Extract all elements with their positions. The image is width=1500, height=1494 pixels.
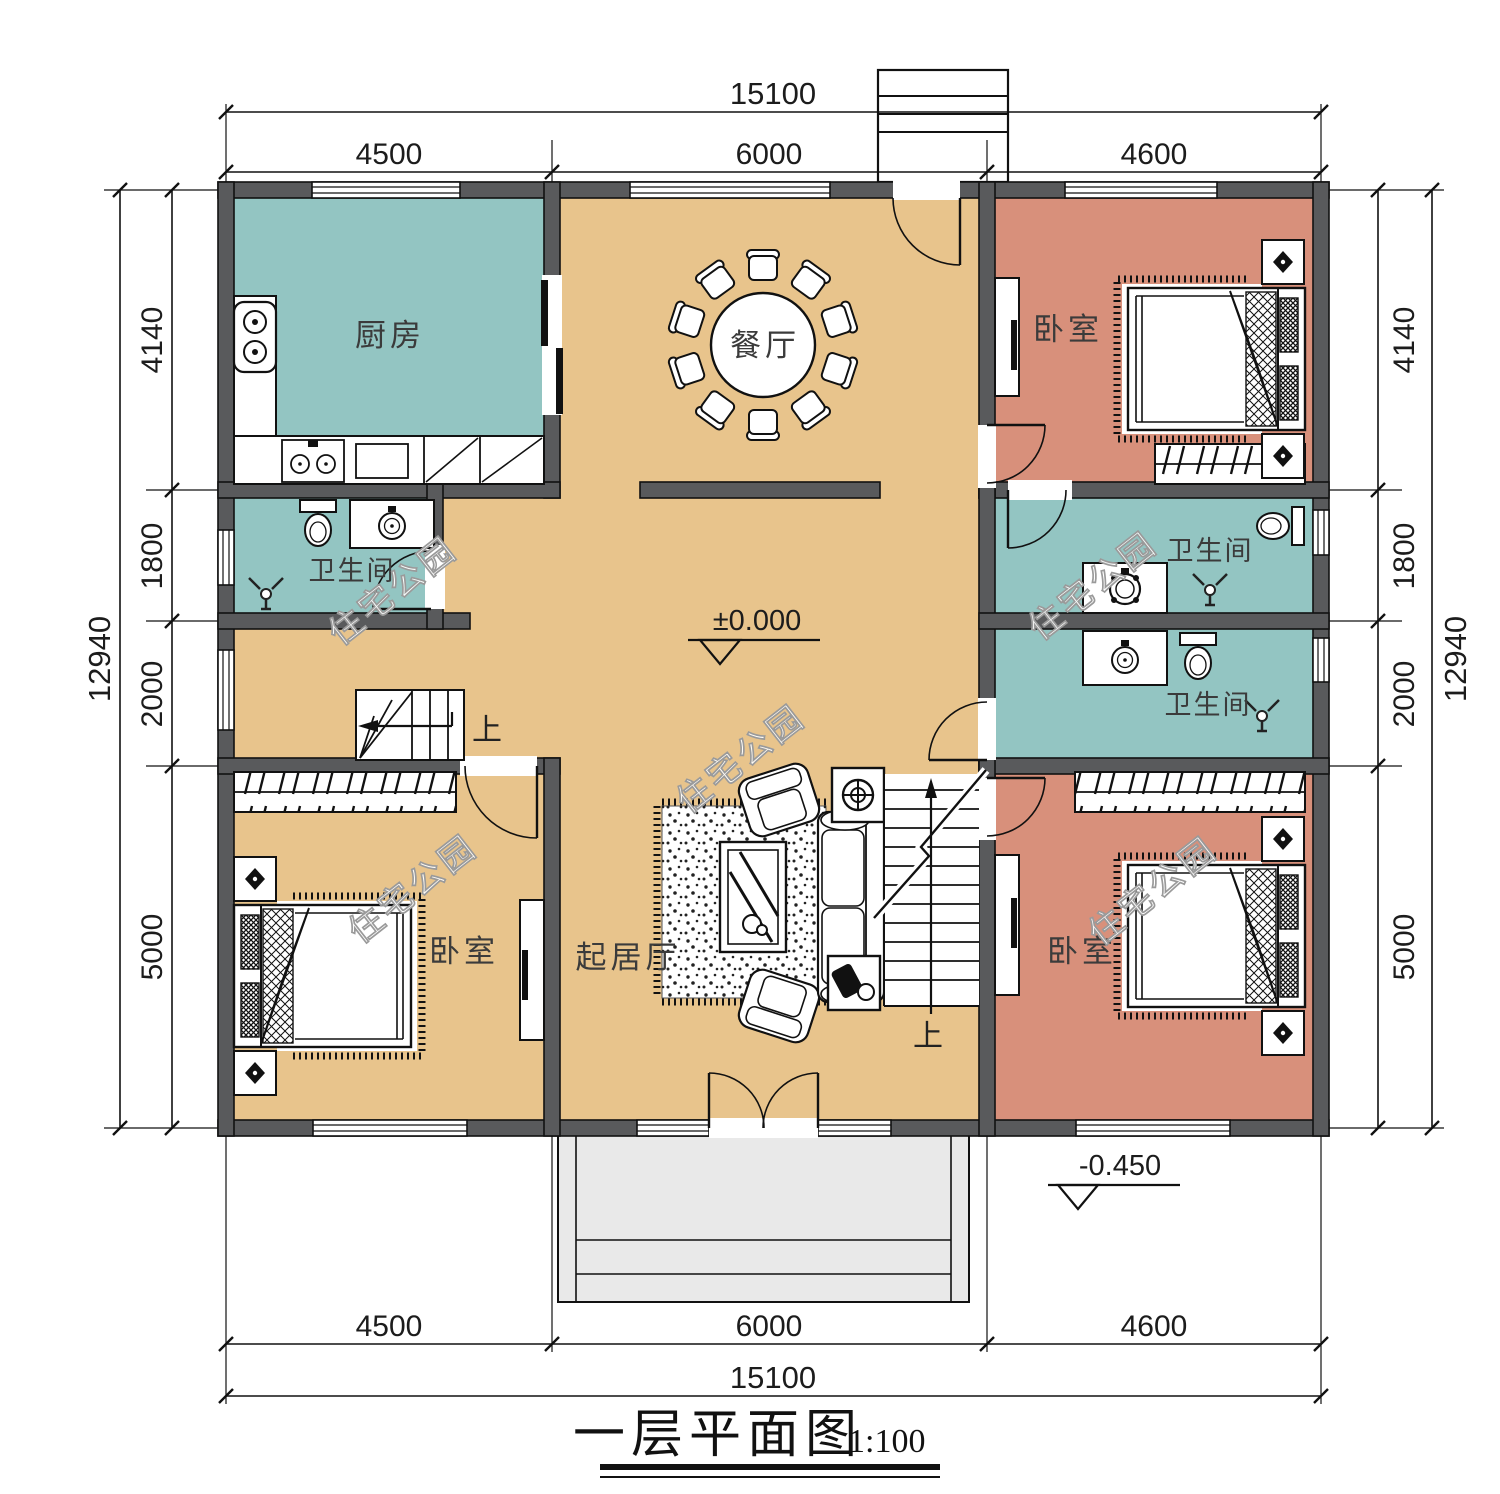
title-block: 一层平面图 1:100 xyxy=(573,1405,940,1478)
bedroom2-label: 卧室 xyxy=(429,934,499,970)
bathroom1-label: 卫生间 xyxy=(1167,536,1254,567)
kitchen-sink xyxy=(282,440,344,482)
coffee-table xyxy=(720,842,786,952)
dim-right-4: 5000 xyxy=(1388,914,1421,981)
nightstand xyxy=(1262,434,1304,478)
kitchen-board xyxy=(356,444,408,478)
dim-right-2: 1800 xyxy=(1388,523,1421,590)
stove xyxy=(234,302,276,372)
dimensions-right: 4140 1800 2000 5000 12940 xyxy=(1329,183,1473,1135)
dim-top-right: 4600 xyxy=(1121,138,1188,171)
dim-left-total: 12940 xyxy=(82,616,117,702)
title-underline-thin xyxy=(600,1476,940,1478)
level-porch-value: -0.450 xyxy=(1079,1150,1161,1182)
floor-plan-page: 15100 4500 6000 4600 4500 6000 4600 1510… xyxy=(0,0,1500,1494)
title-underline-thick xyxy=(600,1464,940,1470)
bathroom2-label: 卫生间 xyxy=(1165,690,1252,721)
dimensions-left: 4140 1800 2000 5000 12940 xyxy=(82,183,218,1135)
dim-bottom-mid: 6000 xyxy=(736,1310,803,1343)
kitchen-label: 厨房 xyxy=(355,318,425,354)
bedroom1-window xyxy=(1065,182,1217,198)
bathroom1-window xyxy=(1313,510,1329,555)
level-main-value: ±0.000 xyxy=(713,605,802,637)
dim-left-4: 5000 xyxy=(136,914,169,981)
dim-bottom-left: 4500 xyxy=(356,1310,423,1343)
dim-left-1: 4140 xyxy=(136,307,169,374)
kitchen-sliding-door xyxy=(541,275,563,415)
bedroom2-window xyxy=(313,1120,467,1136)
dim-bottom-total: 15100 xyxy=(730,1360,816,1395)
nightstand xyxy=(1262,1011,1304,1055)
tv xyxy=(522,950,528,1000)
entry-window-right xyxy=(818,1120,891,1136)
dim-left-2: 1800 xyxy=(136,523,169,590)
bedroom1-label: 卧室 xyxy=(1033,312,1103,348)
nightstand xyxy=(1262,240,1304,284)
living-label: 起居厅 xyxy=(576,940,681,976)
dining-label: 餐厅 xyxy=(730,328,800,364)
drawing-title: 一层平面图 xyxy=(573,1405,863,1465)
rear-entry-steps xyxy=(878,70,1008,182)
dim-bottom-right: 4600 xyxy=(1121,1310,1188,1343)
bathroom-left-window xyxy=(218,530,234,585)
dim-top-total: 15100 xyxy=(730,76,816,111)
entry-window-left xyxy=(637,1120,709,1136)
stair-up-label: 上 xyxy=(472,713,502,748)
level-marker-porch: -0.450 xyxy=(1048,1150,1180,1209)
dimensions-top: 15100 4500 6000 4600 xyxy=(219,76,1328,182)
side-table-top xyxy=(832,768,884,822)
stair-up-label: 上 xyxy=(913,1019,943,1054)
tv xyxy=(1011,898,1017,948)
dim-right-3: 2000 xyxy=(1388,661,1421,728)
double-bed xyxy=(1117,279,1305,439)
side-table-bottom xyxy=(828,956,880,1010)
nightstand xyxy=(1262,817,1304,861)
bathroom2-window xyxy=(1313,638,1329,682)
tv xyxy=(1011,320,1017,370)
kitchen-window xyxy=(312,182,460,198)
dim-right-1: 4140 xyxy=(1388,307,1421,374)
dim-right-total: 12940 xyxy=(1438,616,1473,702)
bedroom3-window xyxy=(1076,1120,1230,1136)
nightstand xyxy=(234,857,276,901)
nightstand xyxy=(234,1051,276,1095)
drawing-scale: 1:100 xyxy=(848,1423,925,1460)
dim-top-left: 4500 xyxy=(356,138,423,171)
floor-plan-drawing: 15100 4500 6000 4600 4500 6000 4600 1510… xyxy=(0,0,1500,1494)
dining-window xyxy=(630,182,830,198)
entry-porch xyxy=(558,1128,969,1302)
dim-top-mid: 6000 xyxy=(736,138,803,171)
hall-left-window xyxy=(218,650,234,730)
dim-left-3: 2000 xyxy=(136,661,169,728)
